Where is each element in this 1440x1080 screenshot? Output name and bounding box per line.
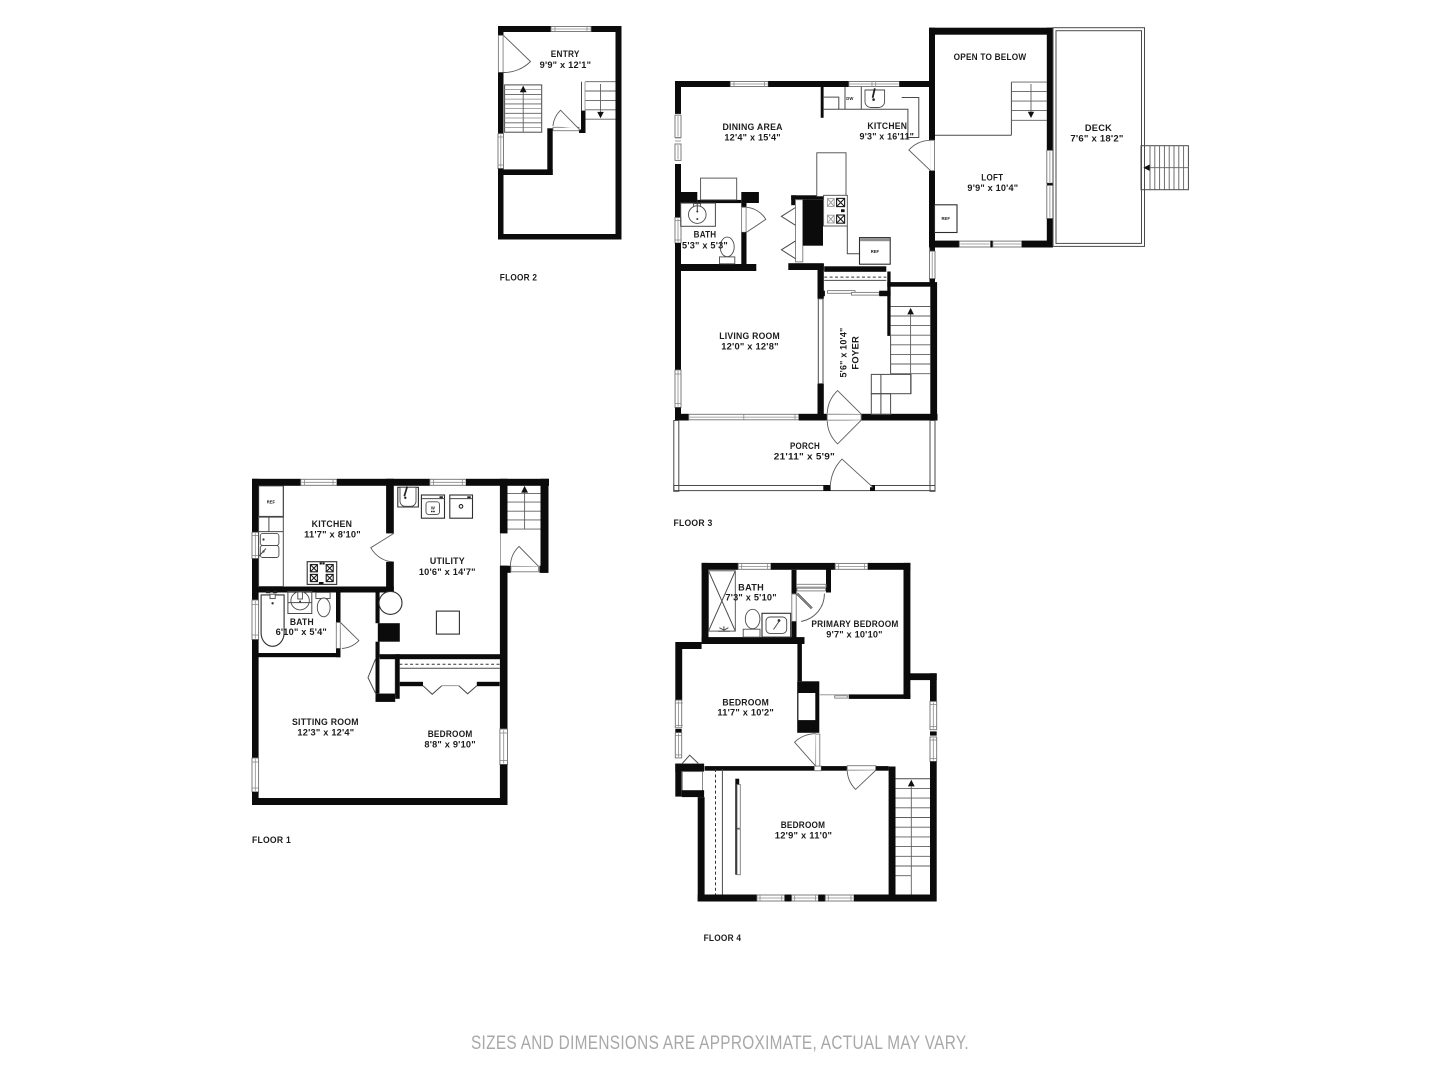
svg-text:OPEN TO BELOW: OPEN TO BELOW — [954, 52, 1027, 62]
svg-text:FLOOR 3: FLOOR 3 — [674, 518, 713, 528]
svg-text:LOFT: LOFT — [981, 172, 1003, 182]
svg-text:11'7" x 8'10": 11'7" x 8'10" — [304, 530, 361, 540]
svg-text:PRIMARY BEDROOM: PRIMARY BEDROOM — [811, 619, 898, 629]
svg-text:5'6" x 10'4": 5'6" x 10'4" — [839, 328, 849, 378]
svg-text:REF: REF — [267, 500, 276, 505]
svg-text:9'9" x 12'1": 9'9" x 12'1" — [540, 60, 592, 70]
svg-text:BEDROOM: BEDROOM — [781, 820, 826, 830]
svg-text:8'8" x 9'10": 8'8" x 9'10" — [424, 739, 475, 749]
svg-text:7'3" x 5'10": 7'3" x 5'10" — [725, 593, 776, 603]
svg-text:W: W — [431, 505, 435, 510]
svg-text:KITCHEN: KITCHEN — [312, 519, 353, 529]
svg-text:FLOOR 1: FLOOR 1 — [252, 835, 291, 845]
svg-text:SIZES AND DIMENSIONS ARE APPRO: SIZES AND DIMENSIONS ARE APPROXIMATE, AC… — [471, 1033, 969, 1054]
svg-text:PORCH: PORCH — [790, 441, 820, 451]
svg-text:11'7" x 10'2": 11'7" x 10'2" — [717, 707, 774, 717]
svg-text:BATH: BATH — [738, 583, 764, 593]
svg-text:FLOOR 2: FLOOR 2 — [500, 273, 537, 283]
svg-text:UTILITY: UTILITY — [430, 556, 465, 566]
svg-text:10'6" x 14'7": 10'6" x 14'7" — [419, 567, 476, 577]
svg-text:REF: REF — [871, 249, 880, 254]
svg-text:6'10" x 5'4": 6'10" x 5'4" — [276, 627, 327, 637]
svg-text:FOYER: FOYER — [851, 336, 861, 370]
svg-text:12'0" x 12'8": 12'0" x 12'8" — [721, 341, 779, 351]
svg-text:DINING AREA: DINING AREA — [722, 122, 783, 132]
svg-text:7'6" x 18'2": 7'6" x 18'2" — [1070, 134, 1123, 144]
svg-text:9'7" x 10'10": 9'7" x 10'10" — [826, 629, 882, 639]
svg-text:BATH: BATH — [290, 617, 314, 627]
svg-text:5'3" x 5'3": 5'3" x 5'3" — [682, 240, 728, 250]
svg-text:BATH: BATH — [694, 230, 717, 240]
svg-text:FLOOR 4: FLOOR 4 — [704, 933, 742, 943]
svg-text:BEDROOM: BEDROOM — [428, 729, 473, 739]
svg-text:21'11" x 5'9": 21'11" x 5'9" — [774, 451, 835, 461]
svg-text:KITCHEN: KITCHEN — [867, 121, 907, 131]
svg-text:12'3" x 12'4": 12'3" x 12'4" — [297, 727, 354, 737]
svg-text:ENTRY: ENTRY — [551, 49, 580, 59]
svg-text:DECK: DECK — [1085, 123, 1113, 133]
svg-text:9'9" x 10'4": 9'9" x 10'4" — [967, 183, 1018, 193]
svg-text:REF: REF — [942, 216, 951, 221]
svg-text:9'3" x 16'11": 9'3" x 16'11" — [860, 131, 915, 141]
svg-text:12'4" x 15'4": 12'4" x 15'4" — [724, 132, 780, 142]
svg-text:LIVING ROOM: LIVING ROOM — [719, 331, 780, 341]
svg-text:BEDROOM: BEDROOM — [722, 697, 769, 707]
svg-text:SITTING ROOM: SITTING ROOM — [292, 717, 359, 727]
svg-text:12'9" x 11'0": 12'9" x 11'0" — [775, 830, 832, 840]
svg-text:DW: DW — [846, 96, 853, 101]
